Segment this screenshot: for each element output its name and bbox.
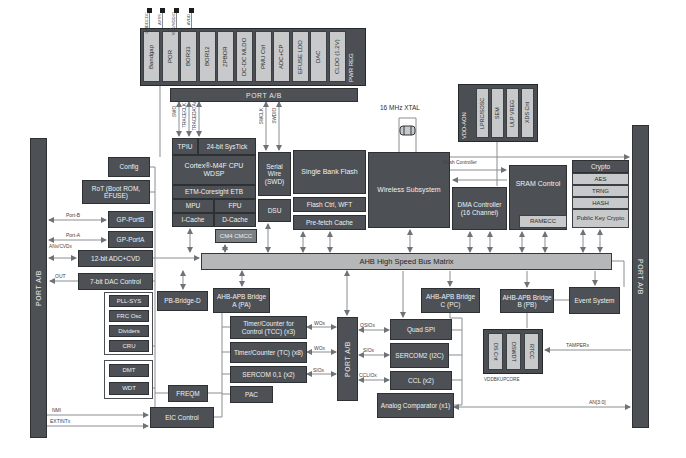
signal-an30-label: AN[3:0] xyxy=(589,399,606,405)
crypto-header: Crypto xyxy=(572,160,629,173)
etm-coresight-etb-block: ETM-Coresight ETB xyxy=(172,185,256,199)
pin-vdd-vddio-label: VDD/VDDIO xyxy=(171,12,176,35)
wireless-subsystem-block: Wireless Subsystem xyxy=(368,152,450,228)
aon-cell-xds-cnt: XDS Cnt xyxy=(521,88,534,138)
mpu-block: MPU xyxy=(172,199,214,213)
pll-sys-block: PLL-SYS xyxy=(109,295,149,307)
backup-cell-dswdt: DSWDT xyxy=(506,333,521,370)
flash-controller-label: Flash Controller xyxy=(443,160,477,165)
signal-porta-label: Port-A xyxy=(66,232,80,238)
quad-spi-block: Quad SPI xyxy=(390,319,452,340)
systick-block: 24-bit SysTick xyxy=(198,138,256,155)
pwr-cell-bor33: BOR33 xyxy=(180,31,197,82)
pwr-cell-por: POR xyxy=(162,31,179,82)
signal-extintx-label: EXTINTx xyxy=(50,418,70,424)
icache-block: I-Cache xyxy=(172,213,214,227)
pac-block: PAC xyxy=(230,386,273,403)
pwr-cell-pmu-ctrl: PMU Ctrl xyxy=(255,31,272,82)
vdd-aon-label: VDD-AON xyxy=(461,87,467,139)
dcache-block: D-Cache xyxy=(214,213,256,227)
cru-block: CRU xyxy=(109,340,149,352)
signal-tamperx-label: TAMPERx xyxy=(566,342,589,348)
ramecc-block: RAMECC xyxy=(519,215,567,228)
pb-bridge-d-block: PB-Bridge-D xyxy=(157,291,208,311)
port-ab-bar-mid: PORT A/B xyxy=(337,317,358,401)
crypto-cell-aes: AES xyxy=(572,173,629,185)
prefetch-cache-block: Pre-fetch Cache xyxy=(293,215,366,230)
signal-anx-cvdx-label: ANx/CVDx xyxy=(49,244,72,249)
sercom2-i2c-block: SERCOM2 (I2C) xyxy=(390,343,449,368)
pwr-reg-label: PWR REG xyxy=(348,31,354,82)
vddbkupcore-label: VDDBKUPCORE xyxy=(484,377,519,382)
xtal-label: 16 MHz XTAL xyxy=(380,104,420,111)
pwr-cell-dcdc-mldo: DC-DC MLDO xyxy=(236,31,253,82)
ahb-apb-bridge-c-block: AHB-APB Bridge C (PC) xyxy=(421,288,480,313)
aon-cell-lprc-sosc: LPRC/SOSC xyxy=(476,88,489,138)
adc-cvd-block: 12-bit ADC+CVD xyxy=(78,250,153,267)
aon-cell-sem: SEM xyxy=(491,88,504,138)
signal-wox2-label: WOx xyxy=(314,345,325,351)
pwr-cell-zpbor: ZPBOR xyxy=(217,31,234,82)
tcc-block: Timer/Counter for Control (TCC) (x3) xyxy=(230,316,307,339)
pwr-cell-efuse-ldo: EFUSE LDO xyxy=(292,31,309,82)
port-ab-bar-mid-label: PORT A/B xyxy=(344,341,351,377)
signal-qsiox-label: QSIOx xyxy=(360,322,375,328)
cortex-m4f-core-block: Cortex®-M4F CPU WDSP xyxy=(172,155,256,185)
flash-ctrl-wft-block: Flash Ctrl, WFT xyxy=(293,197,366,212)
port-ab-bar-left: PORT A/B xyxy=(30,138,47,438)
signal-nmi-label: NMI xyxy=(52,407,61,413)
pin-avss-label: AVSS xyxy=(157,14,162,25)
dividers-block: Dividers xyxy=(109,325,149,337)
port-ab-bar-left-label: PORT A/B xyxy=(35,270,42,306)
frc-osc-block: FRC Osc xyxy=(109,310,149,322)
config-block: Config xyxy=(108,157,150,177)
pwr-cell-dac: DAC xyxy=(310,31,327,82)
port-ab-bar-right-label: PORT A/B xyxy=(637,259,644,295)
crypto-cell-public-key: Public Key Crypto xyxy=(572,209,629,228)
gp-portb-block: GP-PortB xyxy=(108,211,153,228)
soc-block-diagram: Bandgap POR BOR33 BOR12 ZPBOR DC-DC MLDO… xyxy=(0,0,686,458)
signal-traceclk-label: TRACECLK xyxy=(182,103,187,128)
wdt-block: WDT xyxy=(109,382,149,395)
single-bank-flash-block: Single Bank Flash xyxy=(293,150,366,194)
backup-cell-rtcc: RTCC xyxy=(524,333,539,370)
port-ab-bar-right: PORT A/B xyxy=(632,125,649,428)
tpiu-block: TPIU xyxy=(172,138,198,155)
signal-ccliox-label: CCLIOx xyxy=(359,372,377,378)
port-ab-bar-top: PORT A/B xyxy=(170,88,358,102)
event-system-block: Event System xyxy=(569,287,620,314)
eic-control-block: EIC Control xyxy=(150,407,214,428)
signal-tracedatax-label: TRACEDATAx xyxy=(192,101,197,130)
signal-swclk-label: SWCLK xyxy=(259,108,264,124)
crypto-cell-trng: TRNG xyxy=(572,185,629,197)
signal-swdio-label: SWDIO xyxy=(272,108,277,124)
ccl-block: CCL (x2) xyxy=(390,371,452,390)
signal-out-label: OUT xyxy=(55,273,66,279)
signal-swo-label: SWO xyxy=(172,106,177,117)
signal-siox2-label: SIOx xyxy=(363,347,374,353)
dsu-block: DSU xyxy=(258,199,291,222)
aon-cell-ulp-vreg: ULP VREG xyxy=(506,88,519,138)
pin-avdd-label: AVDD xyxy=(186,14,191,25)
ahb-apb-bridge-b-block: AHB-APB Bridge B (PB) xyxy=(500,289,554,313)
ahb-apb-bridge-a-block: AHB-APB Bridge A (PA) xyxy=(213,288,270,313)
pwr-cell-bandgap: Bandgap xyxy=(143,31,160,82)
pwr-cell-adc-cp: ADC+CP xyxy=(273,31,290,82)
dac-control-block: 7-bit DAC Control xyxy=(78,273,153,290)
gp-porta-block: GP-PortA xyxy=(108,231,153,248)
serial-wire-swd-block: Serial Wire (SWD) xyxy=(258,152,291,196)
analog-comparator-block: Analog Comparator (x1) xyxy=(377,393,454,418)
freqm-block: FREQM xyxy=(168,385,208,402)
pwr-cell-cldo: CLDO (1.2V) xyxy=(329,31,346,82)
cpu-complex: TPIU 24-bit SysTick Cortex®-M4F CPU WDSP… xyxy=(172,138,256,227)
fpu-block: FPU xyxy=(214,199,256,213)
signal-portb-label: Port-B xyxy=(66,212,80,218)
tc-block: Timer/Counter (TC) (x8) xyxy=(230,342,307,363)
signal-wox1-label: WOx xyxy=(314,320,325,326)
pwr-cell-bor12: BOR12 xyxy=(199,31,216,82)
ahb-bus-matrix: AHB High Speed Bus Matrix xyxy=(201,253,612,270)
signal-siox1-label: SIOx xyxy=(313,367,324,373)
dma-controller-block: DMA Controller (16 Channel) xyxy=(452,187,507,230)
sercom01-block: SERCOM 0,1 (x2) xyxy=(230,366,307,383)
crypto-block: Crypto AES TRNG HASH Public Key Crypto xyxy=(572,160,629,228)
backup-cell-ds-cnt: DS Cnt xyxy=(488,333,503,370)
dmt-block: DMT xyxy=(109,364,149,377)
crypto-cell-hash: HASH xyxy=(572,197,629,209)
cm4-cmcc-block: CM4 CMCC xyxy=(215,229,257,243)
rot-boot-rom-block: RoT (Boot ROM, EFUSE) xyxy=(82,180,150,204)
pin-gnddcdc-label: GNDDCDC xyxy=(144,12,149,33)
